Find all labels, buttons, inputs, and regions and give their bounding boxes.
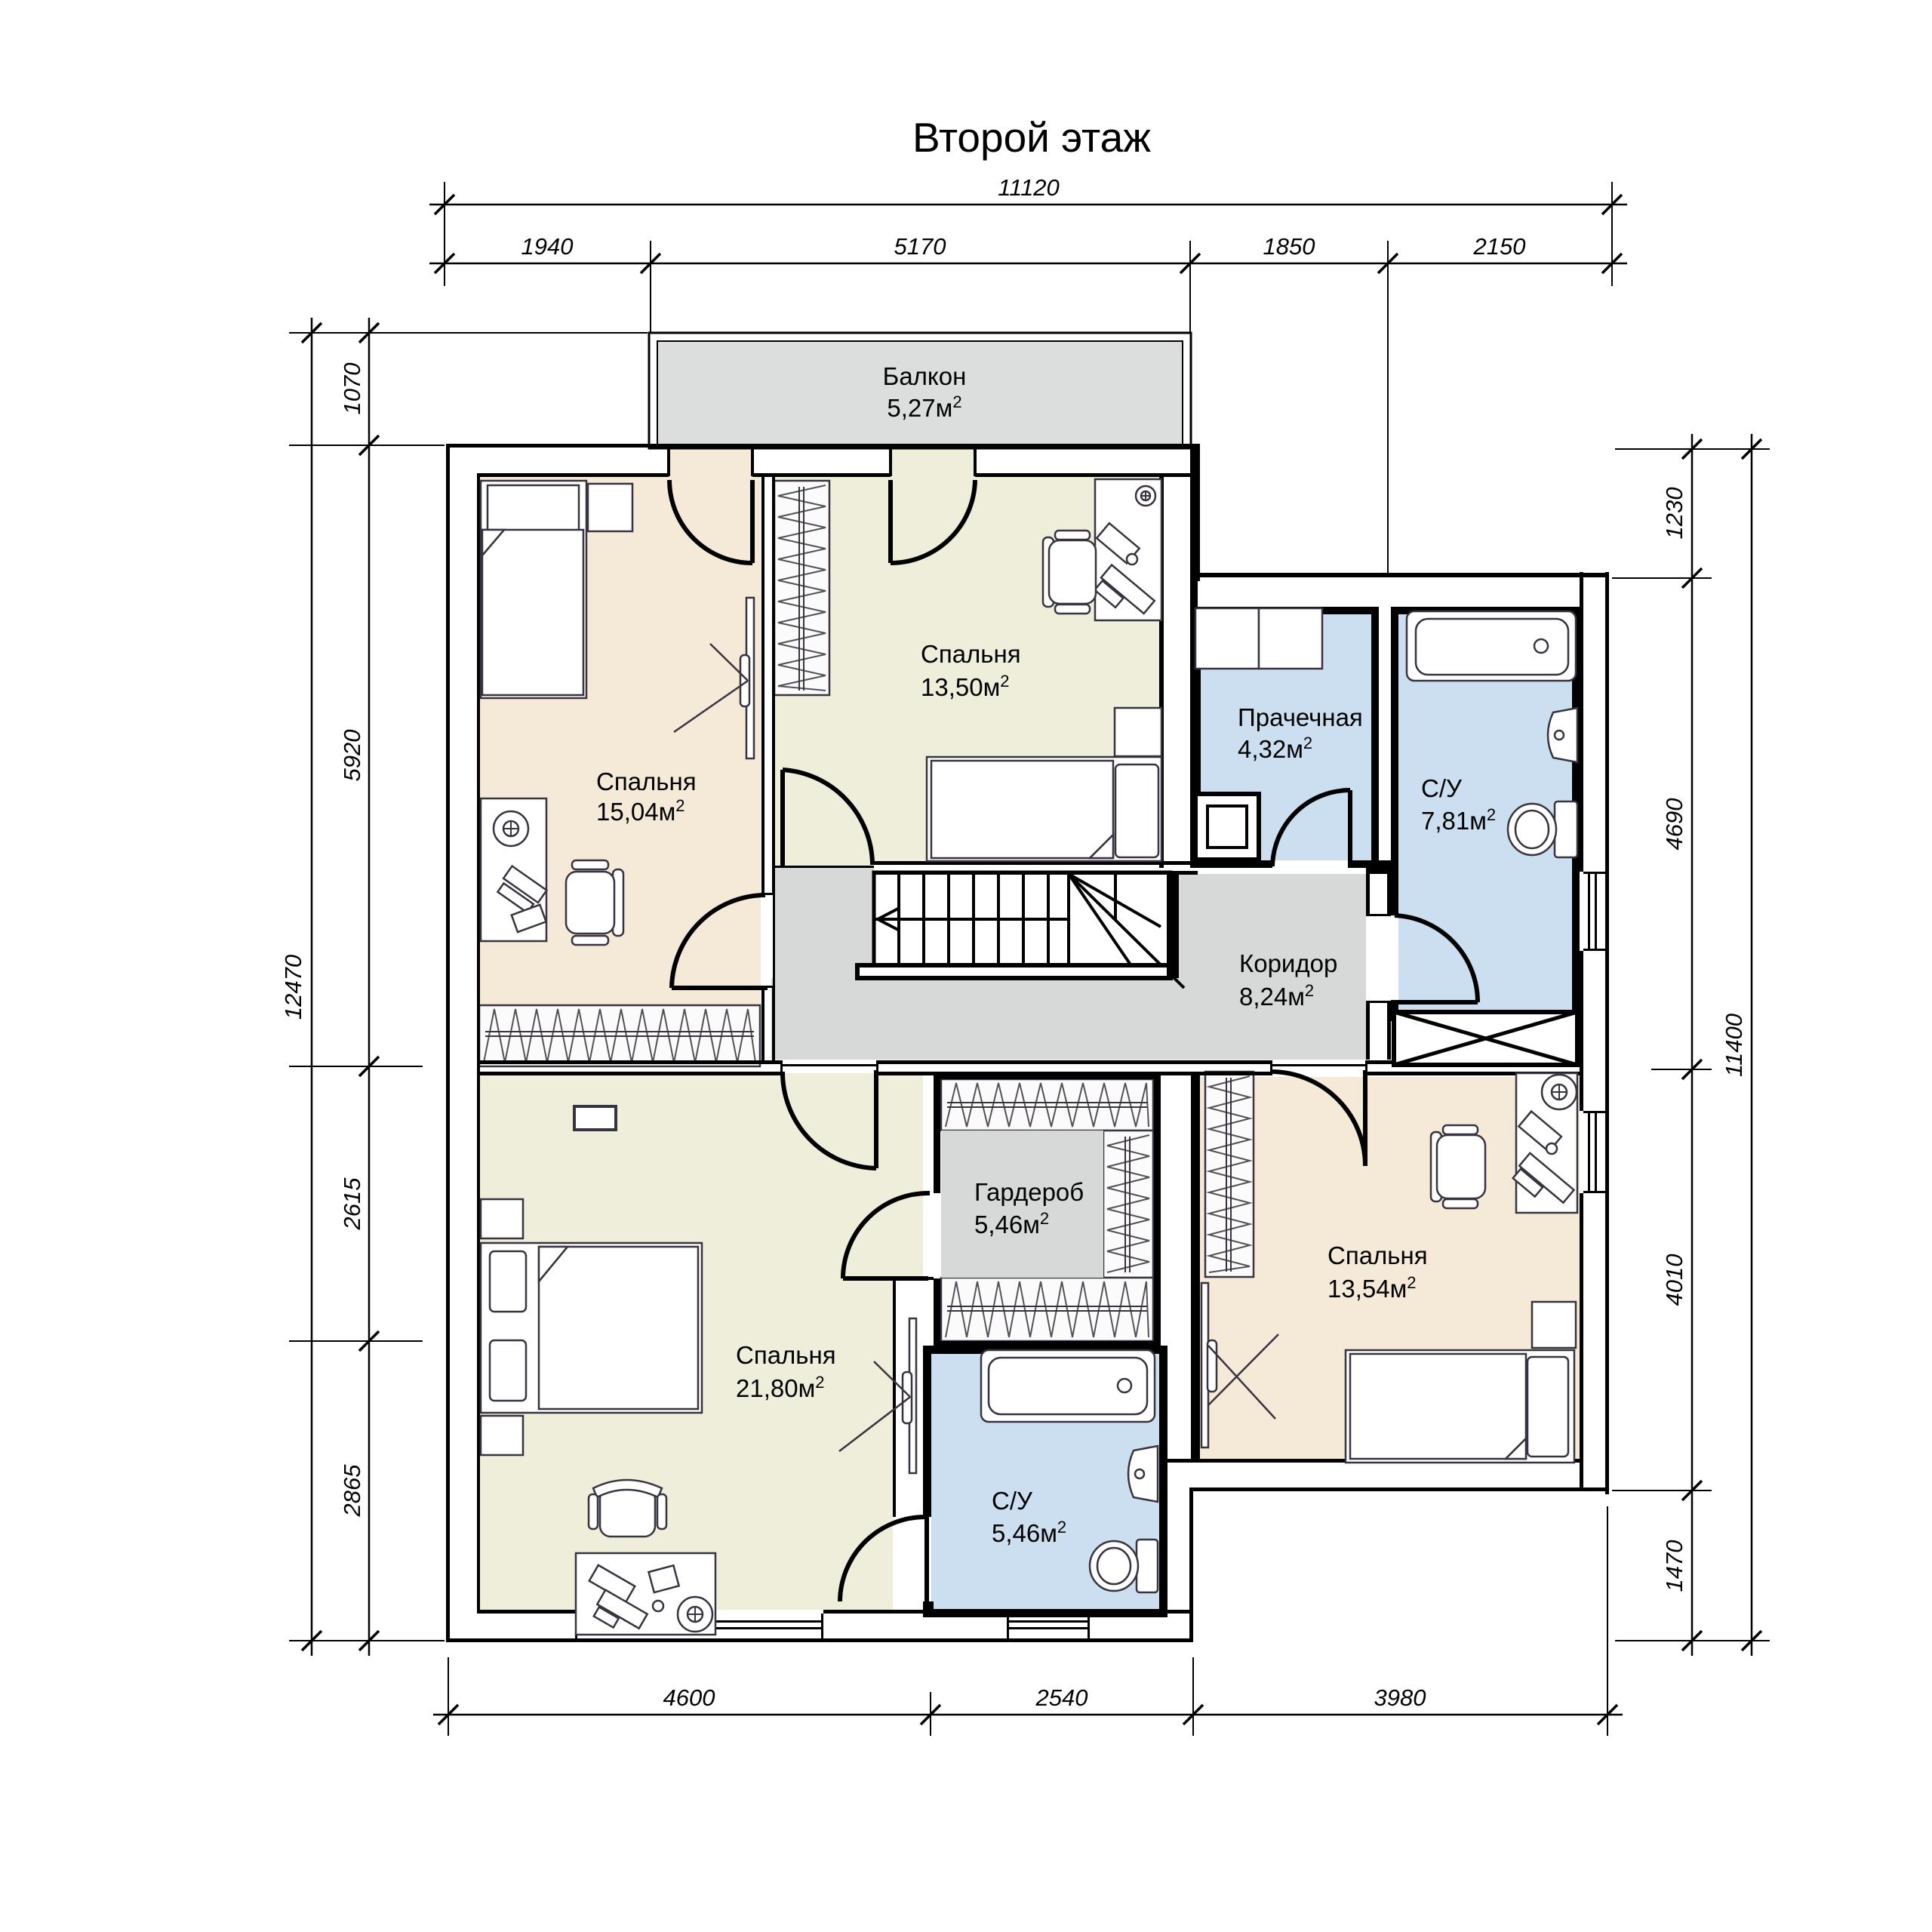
- svg-text:3980: 3980: [1374, 1684, 1426, 1711]
- svg-text:4010: 4010: [1661, 1254, 1687, 1306]
- svg-text:2540: 2540: [1035, 1684, 1088, 1711]
- svg-text:С/У: С/У: [1421, 774, 1463, 802]
- svg-text:5,46м2: 5,46м2: [992, 1518, 1066, 1547]
- svg-text:Прачечная: Прачечная: [1238, 703, 1363, 731]
- svg-text:13,50м2: 13,50м2: [921, 672, 1010, 701]
- svg-text:5170: 5170: [894, 233, 946, 260]
- svg-text:1470: 1470: [1661, 1540, 1687, 1592]
- svg-text:Спальня: Спальня: [1327, 1241, 1428, 1269]
- svg-text:11120: 11120: [998, 174, 1060, 201]
- svg-text:Спальня: Спальня: [921, 640, 1021, 668]
- svg-text:4690: 4690: [1661, 798, 1687, 851]
- svg-text:11400: 11400: [1721, 1014, 1747, 1077]
- svg-text:С/У: С/У: [992, 1487, 1033, 1515]
- svg-text:8,24м2: 8,24м2: [1239, 981, 1314, 1011]
- svg-text:2150: 2150: [1473, 233, 1526, 260]
- svg-text:Спальня: Спальня: [736, 1341, 836, 1369]
- svg-text:5,27м2: 5,27м2: [887, 392, 961, 422]
- svg-text:5,46м2: 5,46м2: [974, 1209, 1049, 1238]
- svg-text:Коридор: Коридор: [1239, 949, 1337, 977]
- svg-text:2615: 2615: [339, 1177, 365, 1231]
- svg-text:1230: 1230: [1661, 488, 1687, 540]
- svg-text:1940: 1940: [521, 233, 574, 260]
- svg-text:1850: 1850: [1263, 233, 1315, 260]
- svg-text:Спальня: Спальня: [596, 768, 697, 795]
- svg-text:13,54м2: 13,54м2: [1327, 1273, 1417, 1303]
- svg-text:Второй этаж: Второй этаж: [912, 114, 1151, 161]
- svg-text:15,04м2: 15,04м2: [596, 796, 685, 826]
- svg-text:12470: 12470: [280, 955, 306, 1020]
- svg-text:Балкон: Балкон: [883, 362, 967, 390]
- svg-text:5920: 5920: [339, 730, 365, 782]
- svg-text:4,32м2: 4,32м2: [1238, 734, 1312, 763]
- svg-text:21,80м2: 21,80м2: [736, 1373, 825, 1402]
- svg-text:Гардероб: Гардероб: [974, 1178, 1084, 1206]
- svg-text:7,81м2: 7,81м2: [1421, 805, 1496, 835]
- svg-text:2865: 2865: [339, 1464, 365, 1518]
- svg-text:4600: 4600: [663, 1684, 715, 1711]
- svg-text:1070: 1070: [339, 363, 365, 415]
